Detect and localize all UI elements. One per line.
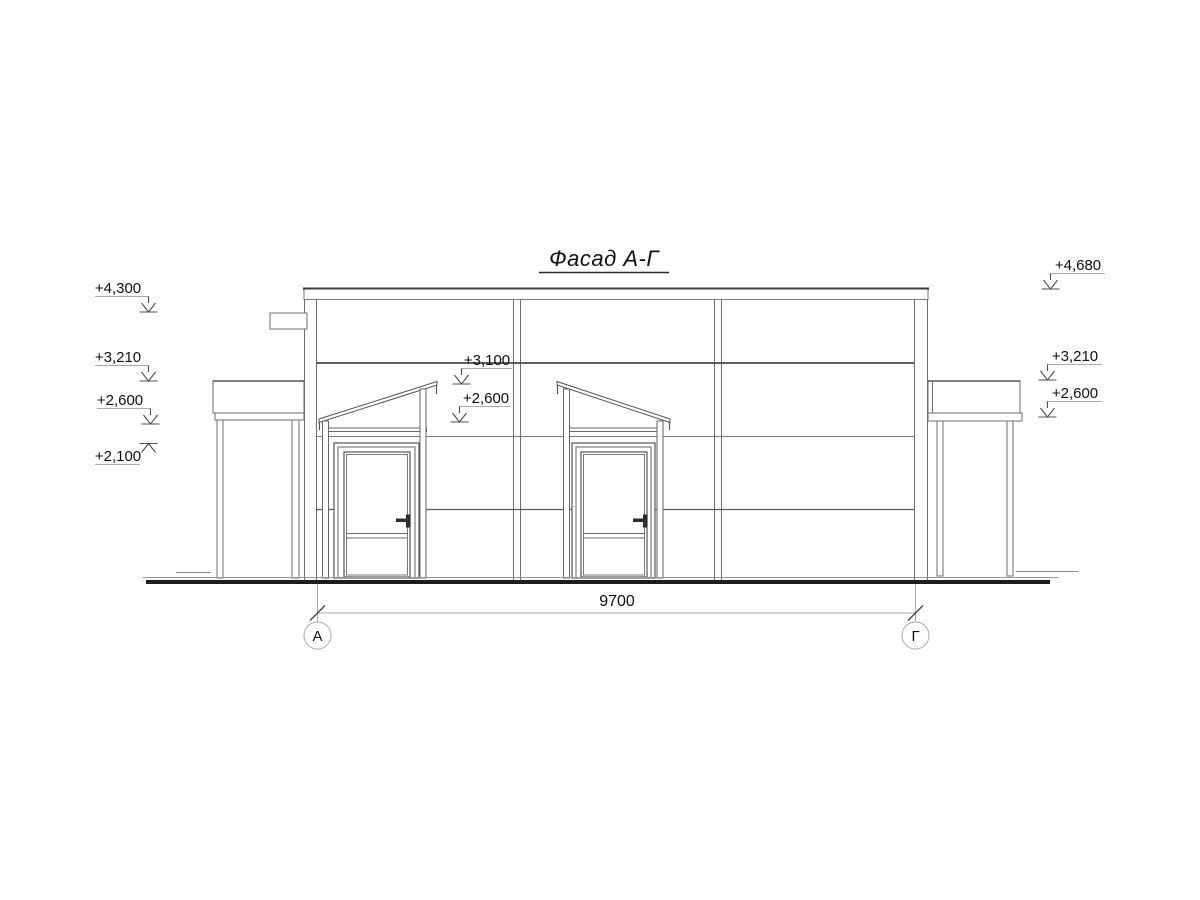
parapet-band	[304, 289, 928, 300]
door-2-leaf	[581, 452, 647, 577]
left-wing-fascia	[213, 381, 304, 413]
level-mark-right-3210: +3,210	[1039, 348, 1103, 380]
level-mark-right-2600: +2,600	[1039, 385, 1103, 417]
level-mark-left-2100: +2,100	[95, 444, 158, 466]
right-wing-post-outer	[1007, 421, 1013, 576]
side-wing-right	[928, 381, 1022, 576]
facade-elevation-drawing: Фасад А-Г	[0, 0, 1200, 900]
left-wing-post-inner	[292, 420, 299, 578]
right-wing-fascia	[928, 381, 1020, 413]
entrance-2	[557, 382, 670, 579]
entrance-1	[319, 382, 437, 579]
door-1-leaf	[344, 452, 410, 577]
wall-projection-box	[270, 313, 307, 329]
level-value: +4,680	[1055, 257, 1101, 274]
level-value: +3,100	[464, 352, 510, 369]
dimension-chain: 9700 А Г	[304, 584, 929, 649]
drawing-title: Фасад А-Г	[549, 246, 660, 271]
canopy-2-beam	[564, 428, 664, 432]
door-2-handle-lever	[633, 519, 644, 523]
right-wing-lip	[928, 413, 1022, 421]
level-value: +4,300	[95, 280, 141, 297]
level-mark-middle-2600: +2,600	[451, 390, 511, 422]
left-wing-post-outer	[217, 420, 223, 578]
level-value: +2,600	[97, 392, 143, 409]
door-1-handle-lever	[396, 519, 407, 523]
side-wing-left	[213, 381, 304, 578]
canopy-2-post-right	[657, 421, 663, 578]
dimension-total-label: 9700	[599, 593, 635, 610]
level-mark-middle-3100: +3,100	[453, 352, 513, 384]
canopy-1-beam	[323, 428, 427, 432]
left-wing-lip	[215, 413, 304, 420]
drawing-title-block: Фасад А-Г	[539, 246, 669, 273]
level-mark-left-4300: +4,300	[95, 280, 158, 312]
axis-label-a: А	[312, 628, 322, 645]
canopy-2-post-left	[564, 389, 570, 578]
drawing-sheet: Фасад А-Г	[0, 0, 1200, 900]
axis-label-g: Г	[911, 628, 919, 645]
level-value: +2,100	[95, 448, 141, 465]
level-value: +2,600	[463, 390, 509, 407]
level-mark-left-2600: +2,600	[97, 392, 160, 424]
canopy-2-slope	[557, 382, 670, 423]
level-value: +3,210	[1052, 348, 1098, 365]
level-mark-right-4680: +4,680	[1042, 257, 1106, 289]
canopy-1-slope	[319, 382, 437, 423]
canopy-1-post-left	[323, 421, 329, 578]
right-wing-post-inner	[937, 421, 943, 576]
level-value: +3,210	[95, 349, 141, 366]
level-value: +2,600	[1052, 385, 1098, 402]
level-mark-left-3210: +3,210	[95, 349, 158, 381]
canopy-1-post-right	[420, 389, 426, 578]
